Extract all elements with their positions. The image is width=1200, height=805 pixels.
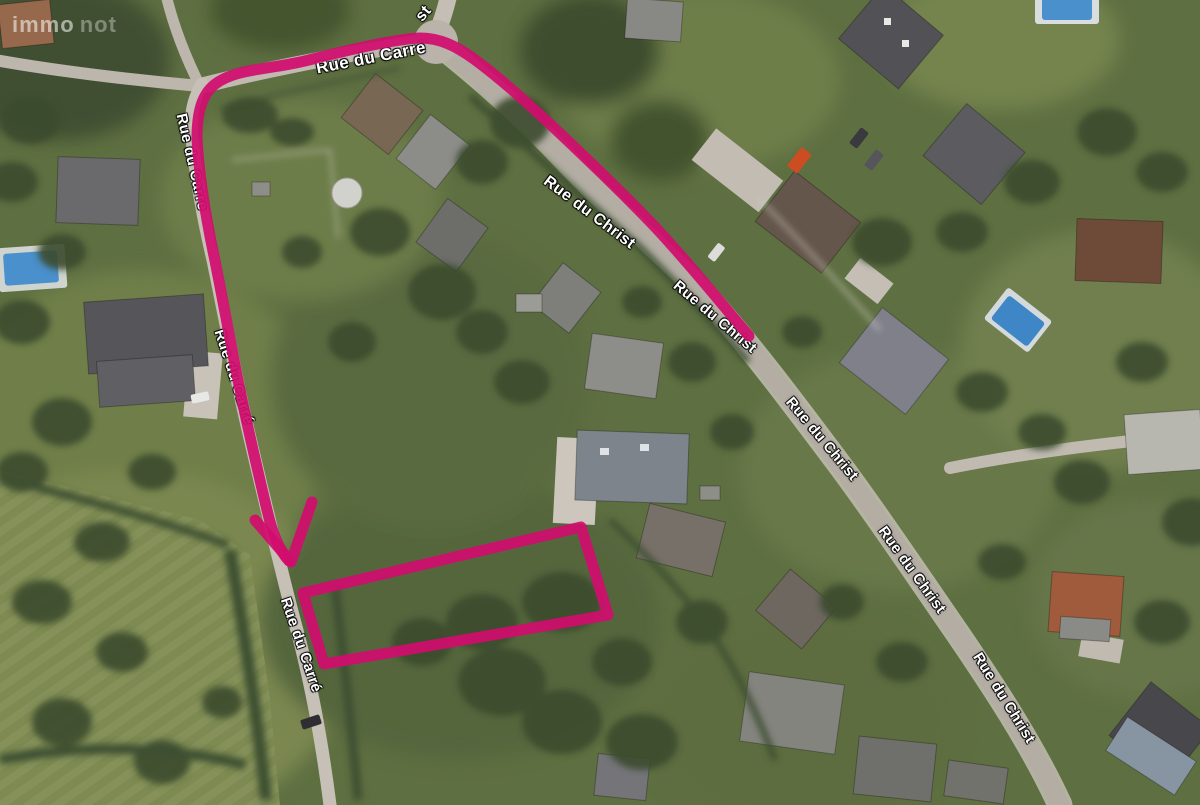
satellite-map[interactable]: stRue du CarréRue du CarreRue du CarréRu…	[0, 0, 1200, 805]
watermark-text-2: not	[80, 12, 117, 37]
annotation-overlay	[0, 0, 1200, 805]
parcel-outline	[303, 527, 608, 664]
route-line	[197, 38, 749, 561]
watermark-text-1: immo	[12, 12, 75, 37]
immonot-watermark: immonot	[12, 12, 117, 38]
